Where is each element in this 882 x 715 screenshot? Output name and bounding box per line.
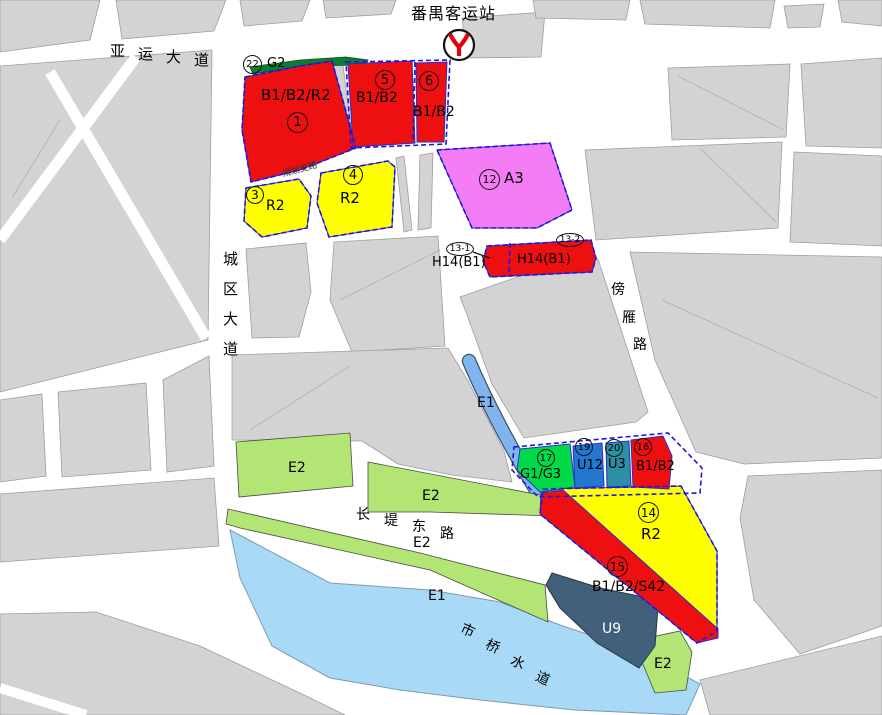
gray-block <box>58 383 151 477</box>
metro-station-icon <box>444 30 474 60</box>
parcel-16-code: B1/B2 <box>636 460 675 474</box>
parcel-22-code: G2 <box>267 57 285 71</box>
river-label: E1 <box>428 589 446 604</box>
parcel-19-code: U12 <box>577 459 603 473</box>
road-name-chengqu: 区 <box>223 278 238 299</box>
parcel-3-number: 3 <box>246 186 264 204</box>
road-name-yayun: 亚 <box>110 40 125 61</box>
gray-block <box>784 4 824 28</box>
u9-label: U9 <box>602 622 621 637</box>
gray-block <box>533 0 630 20</box>
e2-corner-label: E2 <box>654 657 672 672</box>
parcel-20-code: U3 <box>608 458 626 472</box>
parcel-17-code: G1/G3 <box>520 468 561 482</box>
gray-block <box>0 0 100 52</box>
parcel-13-2-number: 13-2 <box>556 233 584 247</box>
gray-block <box>801 58 882 148</box>
parcel-19-number: 19 <box>575 438 593 456</box>
parcel-20-number: 20 <box>605 439 623 457</box>
gray-block <box>116 0 226 39</box>
parcel-4-code: R2 <box>340 191 360 207</box>
road-name-chengqu: 大 <box>223 308 238 329</box>
road-name-bangyan: 雁 <box>622 307 636 327</box>
road-name-chengqu: 城 <box>223 248 238 269</box>
gray-block <box>0 394 46 482</box>
parcel-15-code: B1/B2/S42 <box>592 580 665 595</box>
parcel-4-number: 4 <box>343 165 363 185</box>
parcel-12-code: A3 <box>504 171 524 187</box>
parcel-15-number: 15 <box>607 556 628 577</box>
gray-block <box>700 636 882 715</box>
parcel-16-number: 16 <box>634 438 652 456</box>
gray-block <box>163 356 214 472</box>
parcel-6-code: B1/B2 <box>413 105 455 120</box>
gray-block <box>330 236 445 352</box>
road-name-chengqu: 道 <box>223 338 238 359</box>
planning-map: 番禺客运站 亚 运 大 道 城 区 大 道 傍 雁 路 长 堤 东 路 市 桥 … <box>0 0 882 715</box>
parcel-12-number: 12 <box>479 169 500 190</box>
road-name-changdi: 路 <box>440 523 454 543</box>
gray-block <box>640 0 775 28</box>
gray-block <box>418 153 433 230</box>
parcel-13-1-number: 13-1 <box>446 242 474 256</box>
canal-label: E1 <box>477 396 495 411</box>
road-name-changdi: 东 <box>412 516 426 536</box>
parcel-17-number: 17 <box>537 449 555 467</box>
gray-block <box>585 142 782 240</box>
gray-block <box>740 470 882 654</box>
road-name-changdi: 长 <box>356 504 370 524</box>
e2-bank-label: E2 <box>413 536 431 551</box>
gray-block <box>240 0 310 26</box>
station-name: 番禺客运站 <box>411 6 496 23</box>
road-name-yayun: 大 <box>166 46 181 67</box>
gray-block <box>246 243 311 338</box>
road-name-yayun: 运 <box>138 43 153 64</box>
parcel-3-code: R2 <box>266 199 285 214</box>
parcel-22-number: 22 <box>243 55 262 74</box>
parcel-6-number: 6 <box>419 71 439 91</box>
gray-block <box>838 0 882 26</box>
gray-block <box>630 252 882 464</box>
road-name-bangyan: 路 <box>633 334 647 354</box>
road-name-changdi: 堤 <box>384 510 398 530</box>
road-name-yayun: 道 <box>194 49 209 70</box>
gray-block <box>323 0 396 18</box>
planning-boundary <box>509 243 510 276</box>
parcel-13-2-code: H14(B1) <box>517 253 571 267</box>
gray-block <box>0 478 219 562</box>
e2-left-label: E2 <box>288 461 306 476</box>
e2-mid-label: E2 <box>422 489 440 504</box>
parcel-1-number: 1 <box>287 112 308 133</box>
road-name-bangyan: 傍 <box>611 279 625 299</box>
parcel-14-number: 14 <box>638 502 659 523</box>
parcel-5-code: B1/B2 <box>356 91 398 106</box>
parcel-13-1-code: H14(B1) <box>432 256 486 270</box>
parcel-5-number: 5 <box>375 70 395 90</box>
parcel-1-code: B1/B2/R2 <box>261 88 331 104</box>
road-median <box>396 156 412 232</box>
parcel-14-code: R2 <box>641 527 661 543</box>
gray-block <box>790 152 882 246</box>
